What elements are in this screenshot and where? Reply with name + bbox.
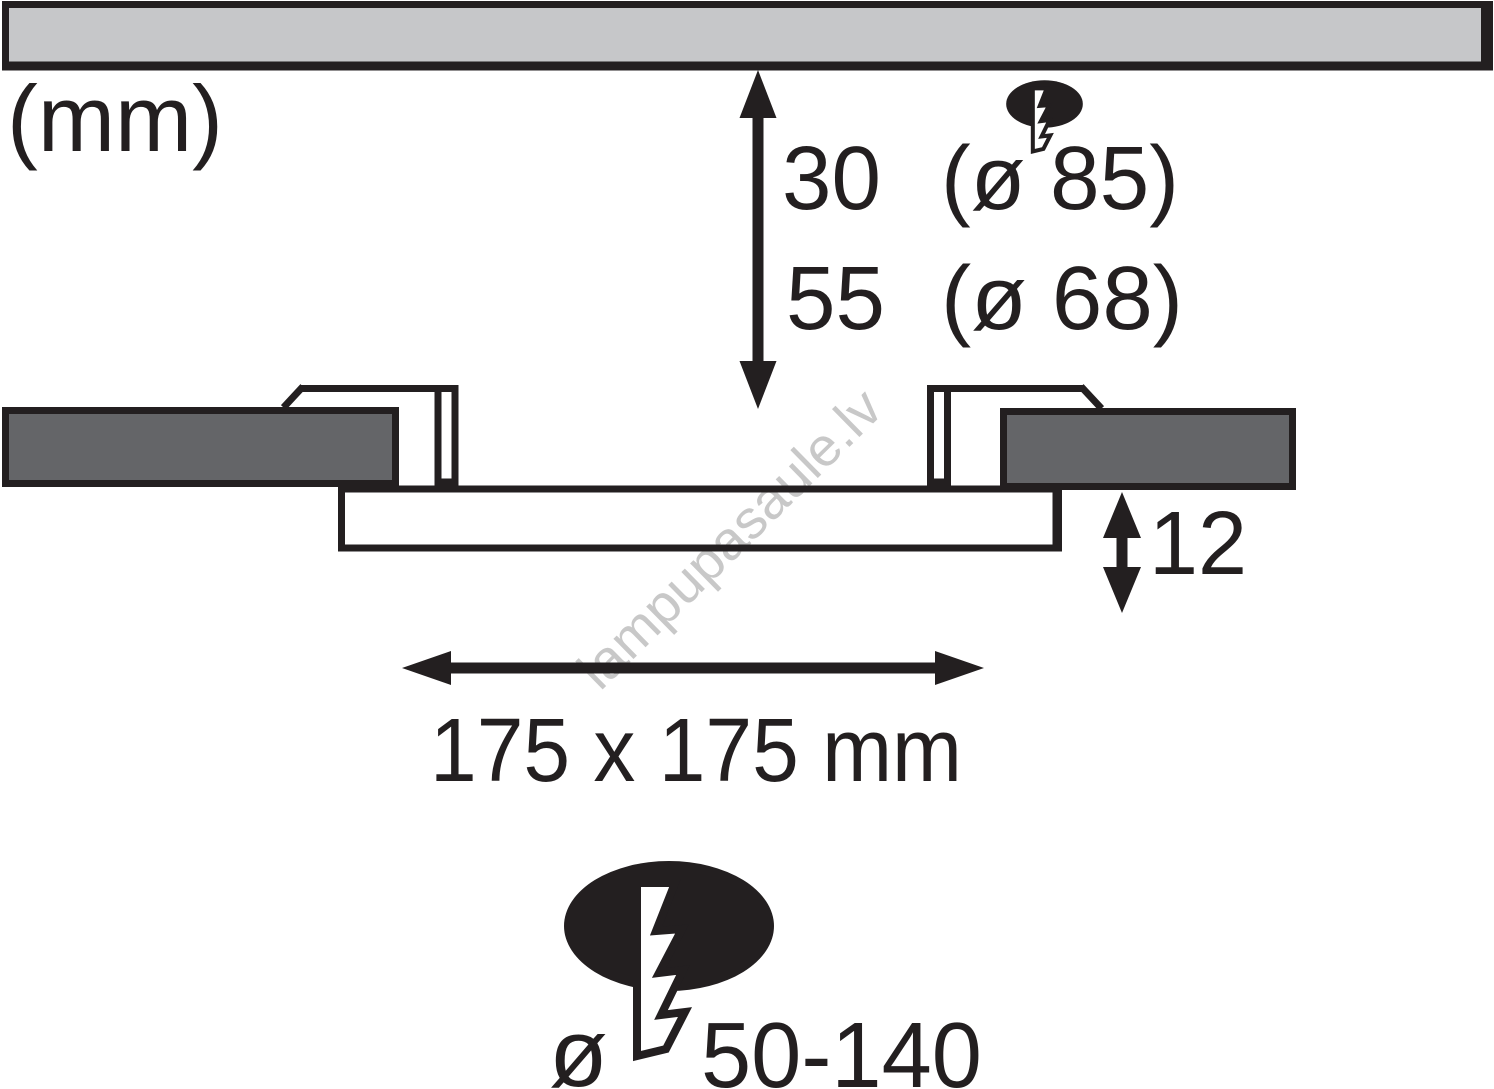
svg-text:12: 12 [1149,494,1247,594]
svg-text:175 x 175 mm: 175 x 175 mm [430,701,962,801]
svg-text:ø: ø [549,1000,608,1089]
svg-text:50-140: 50-140 [701,1003,982,1089]
svg-text:(ø 68): (ø 68) [941,249,1183,349]
svg-text:(mm): (mm) [7,66,223,171]
svg-text:30: 30 [782,129,881,229]
svg-text:55: 55 [786,249,885,349]
svg-text:(ø 85): (ø 85) [941,129,1179,229]
